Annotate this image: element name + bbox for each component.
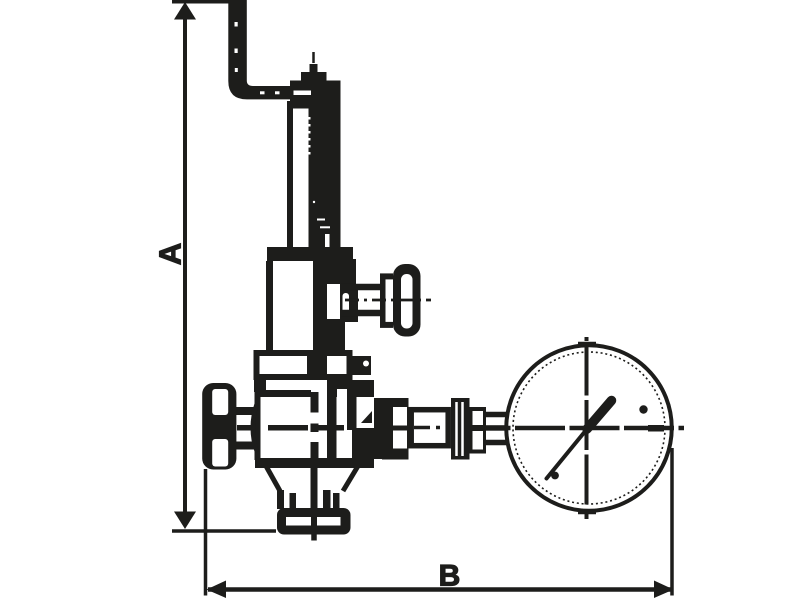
svg-text:A: A xyxy=(153,243,188,265)
svg-text:B: B xyxy=(439,560,461,593)
